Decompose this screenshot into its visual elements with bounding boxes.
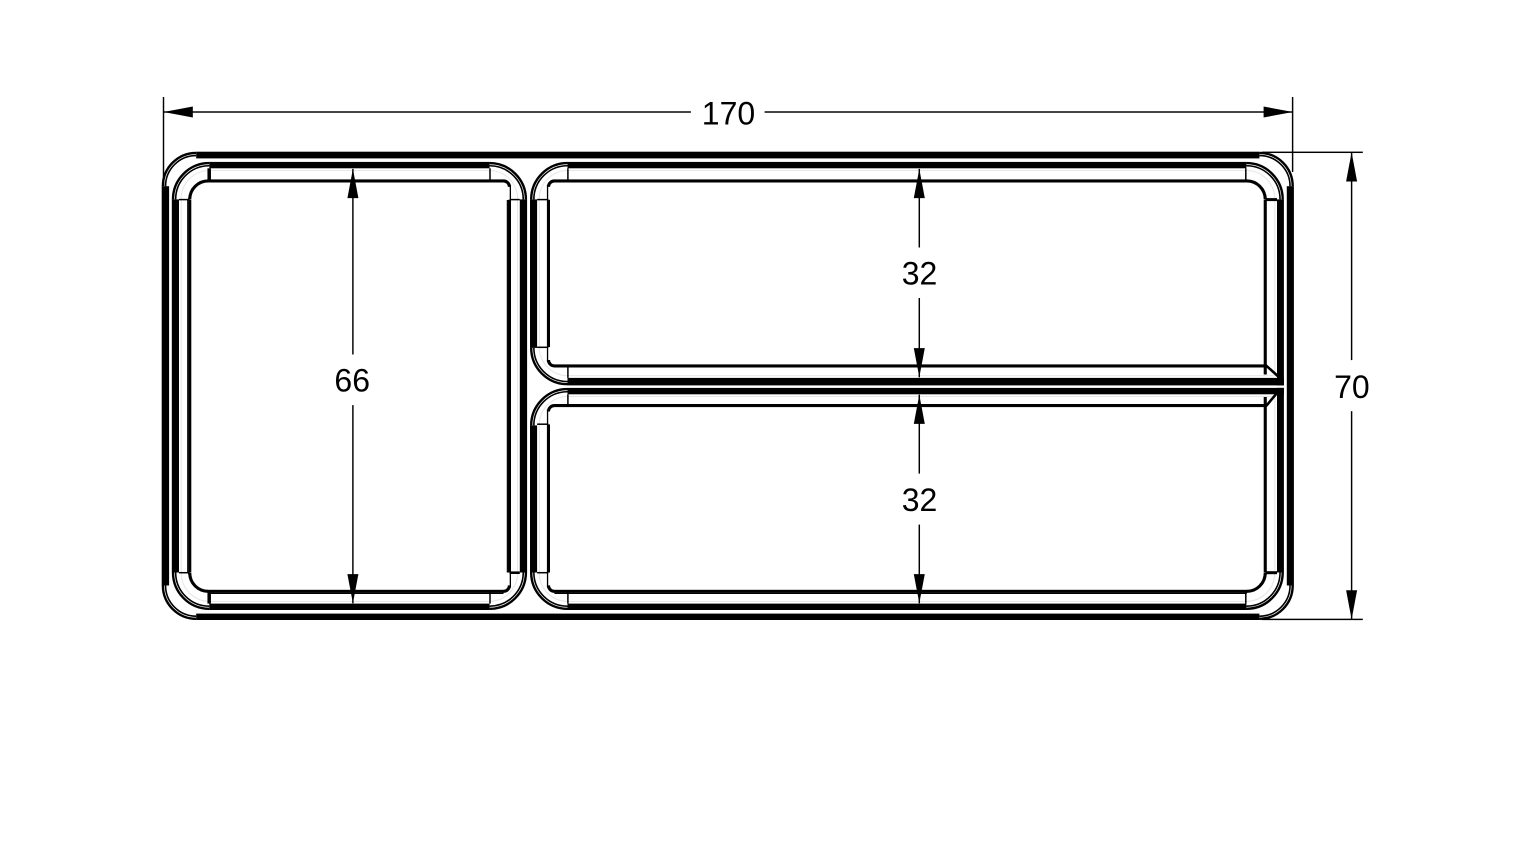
svg-text:32: 32 [902,256,938,292]
svg-text:70: 70 [1334,369,1370,405]
svg-text:32: 32 [902,482,938,518]
svg-text:170: 170 [702,95,755,131]
svg-text:66: 66 [334,363,370,399]
